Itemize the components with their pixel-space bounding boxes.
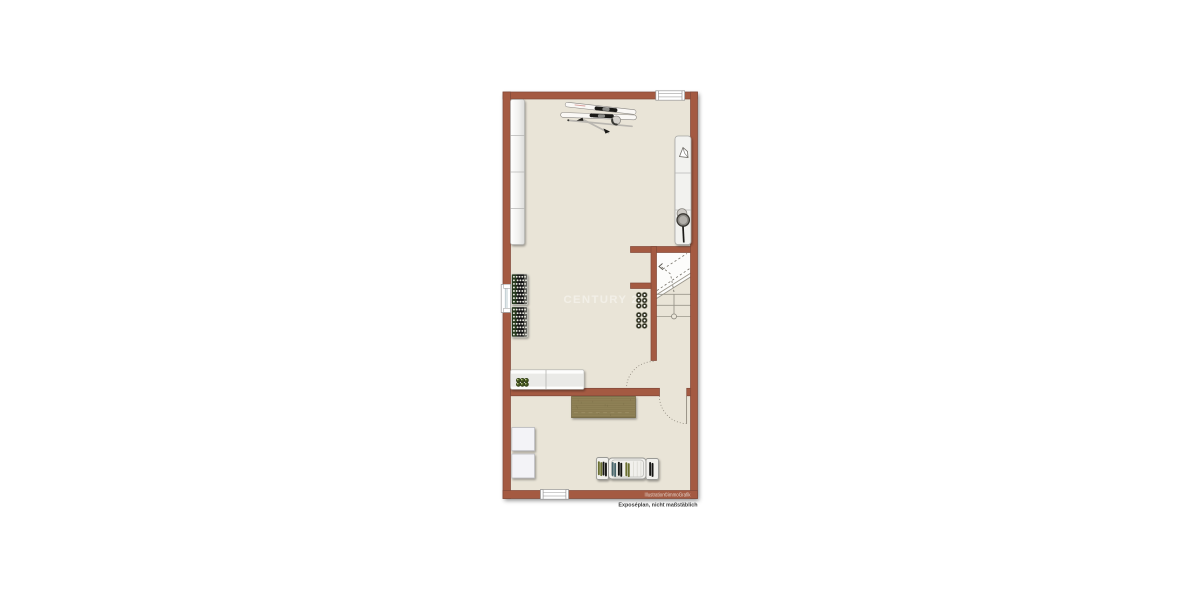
svg-text:CENTURY 21: CENTURY 21 [564,294,647,306]
svg-text:Illustration©immoGrafik: Illustration©immoGrafik [645,491,691,498]
svg-text:Exposéplan, nicht maßstäblich: Exposéplan, nicht maßstäblich [618,503,697,509]
